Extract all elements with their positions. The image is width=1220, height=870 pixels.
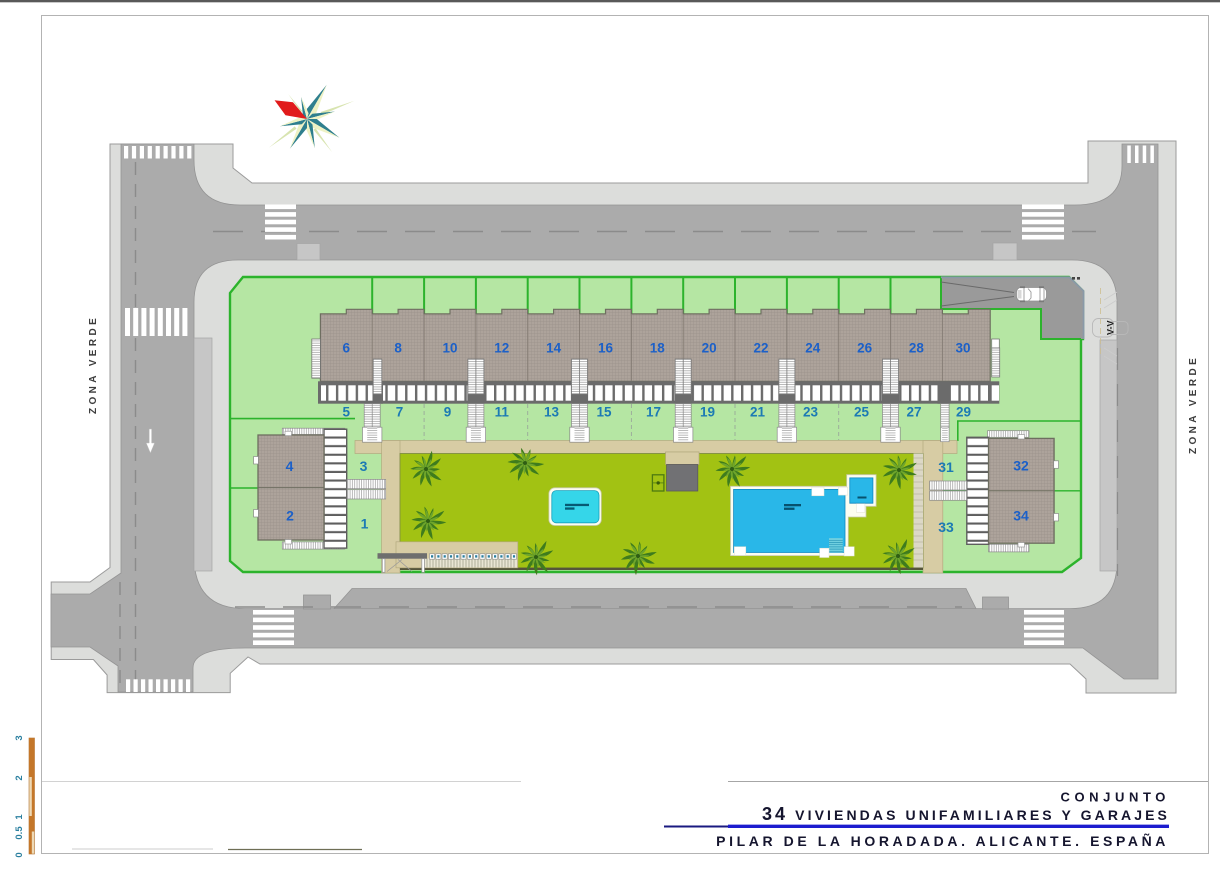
svg-text:31: 31 bbox=[938, 459, 954, 475]
svg-text:33: 33 bbox=[938, 519, 954, 535]
svg-text:2: 2 bbox=[14, 775, 25, 780]
svg-text:1: 1 bbox=[14, 814, 25, 820]
svg-text:22: 22 bbox=[753, 341, 768, 356]
svg-text:34 VIVIENDAS UNIFAMILIARES Y G: 34 VIVIENDAS UNIFAMILIARES Y GARAJES bbox=[762, 804, 1170, 824]
svg-text:CONJUNTO: CONJUNTO bbox=[1060, 790, 1170, 805]
svg-text:9: 9 bbox=[444, 405, 452, 420]
svg-text:3: 3 bbox=[14, 735, 25, 740]
svg-text:27: 27 bbox=[906, 405, 921, 420]
svg-text:0.5: 0.5 bbox=[14, 826, 25, 840]
svg-text:20: 20 bbox=[702, 341, 717, 356]
svg-text:PILAR DE LA HORADADA. ALICANTE: PILAR DE LA HORADADA. ALICANTE. ESPAÑA bbox=[716, 832, 1169, 849]
svg-text:ZONA VERDE: ZONA VERDE bbox=[88, 315, 99, 414]
svg-text:11: 11 bbox=[495, 405, 510, 420]
svg-text:V-V: V-V bbox=[1106, 320, 1116, 335]
svg-text:29: 29 bbox=[956, 405, 971, 420]
svg-text:ZONA VERDE: ZONA VERDE bbox=[1188, 355, 1199, 454]
svg-text:23: 23 bbox=[803, 405, 819, 420]
svg-text:34: 34 bbox=[1013, 508, 1029, 524]
svg-text:10: 10 bbox=[442, 341, 457, 356]
svg-text:4: 4 bbox=[286, 458, 294, 474]
svg-text:32: 32 bbox=[1013, 458, 1029, 474]
svg-text:0: 0 bbox=[14, 852, 25, 857]
svg-text:13: 13 bbox=[544, 405, 560, 420]
svg-text:17: 17 bbox=[646, 405, 661, 420]
svg-text:21: 21 bbox=[750, 405, 766, 420]
svg-text:30: 30 bbox=[955, 341, 970, 356]
svg-text:5: 5 bbox=[343, 405, 351, 420]
svg-text:8: 8 bbox=[394, 341, 402, 356]
svg-text:18: 18 bbox=[650, 341, 666, 356]
svg-text:28: 28 bbox=[909, 341, 925, 356]
svg-text:6: 6 bbox=[343, 341, 351, 356]
svg-text:7: 7 bbox=[396, 405, 404, 420]
svg-text:24: 24 bbox=[805, 341, 821, 356]
svg-text:19: 19 bbox=[700, 405, 715, 420]
svg-text:12: 12 bbox=[494, 341, 509, 356]
svg-text:25: 25 bbox=[854, 405, 870, 420]
svg-text:14: 14 bbox=[546, 341, 562, 356]
svg-text:16: 16 bbox=[598, 341, 614, 356]
svg-text:26: 26 bbox=[857, 341, 873, 356]
svg-text:3: 3 bbox=[360, 458, 368, 474]
svg-text:1: 1 bbox=[361, 516, 369, 532]
svg-text:2: 2 bbox=[286, 508, 294, 524]
svg-text:15: 15 bbox=[596, 405, 612, 420]
